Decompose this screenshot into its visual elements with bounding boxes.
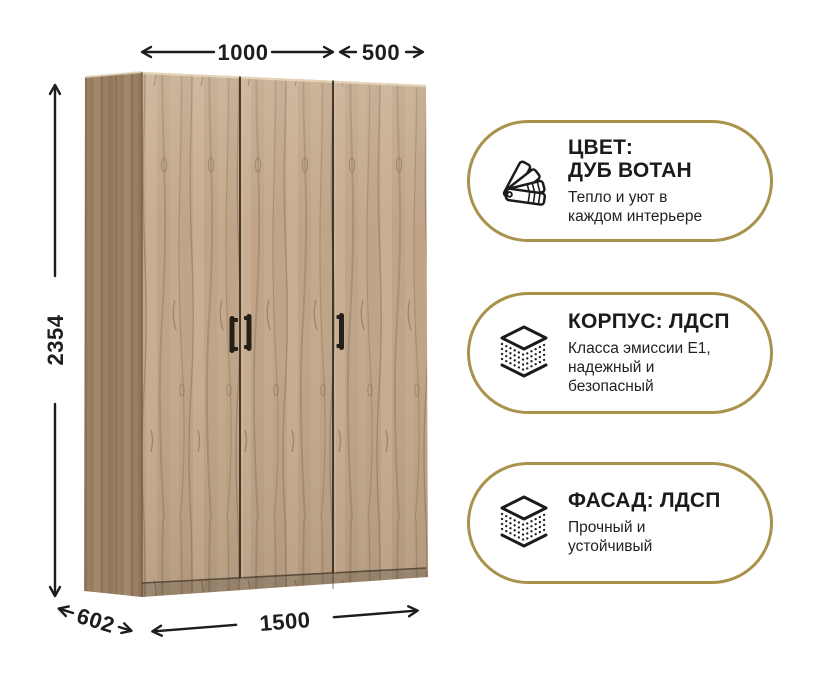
feature-badge-color: ЦВЕТ: ДУБ ВОТАН Тепло и уют в каждом инт…	[467, 120, 773, 242]
dimension-label-top-left: 1000	[218, 40, 269, 65]
product-infographic: 1000 500 2354 602 1500	[0, 0, 816, 700]
badge-title-line: ФАСАД: ЛДСП	[568, 489, 752, 513]
dimension-label-depth: 602	[74, 603, 118, 638]
dimension-label-height: 2354	[43, 314, 68, 365]
badge-subtitle-line: безопасный	[568, 377, 752, 396]
badge-subtitle-line: Прочный и	[568, 518, 752, 537]
badge-title-line: КОРПУС: ЛДСП	[568, 310, 752, 334]
color-swatch-fan-icon	[494, 152, 554, 210]
badge-subtitle-line: устойчивый	[568, 537, 752, 556]
layered-board-icon	[494, 494, 554, 552]
badge-subtitle-line: каждом интерьере	[568, 207, 752, 226]
badge-title-line: ДУБ ВОТАН	[568, 159, 752, 183]
dimension-label-top-right: 500	[362, 40, 400, 65]
feature-badge-body: КОРПУС: ЛДСП Класса эмиссии Е1, надежный…	[467, 292, 773, 414]
wardrobe-front	[142, 72, 428, 597]
dimension-label-total-width: 1500	[259, 607, 312, 636]
wardrobe-side-panel	[84, 72, 142, 597]
layered-board-icon	[494, 324, 554, 382]
badge-title-line: ЦВЕТ:	[568, 136, 752, 160]
badge-subtitle-line: надежный и	[568, 358, 752, 377]
feature-badge-facade: ФАСАД: ЛДСП Прочный и устойчивый	[467, 462, 773, 584]
badge-subtitle-line: Класса эмиссии Е1,	[568, 339, 752, 358]
badge-subtitle-line: Тепло и уют в	[568, 188, 752, 207]
